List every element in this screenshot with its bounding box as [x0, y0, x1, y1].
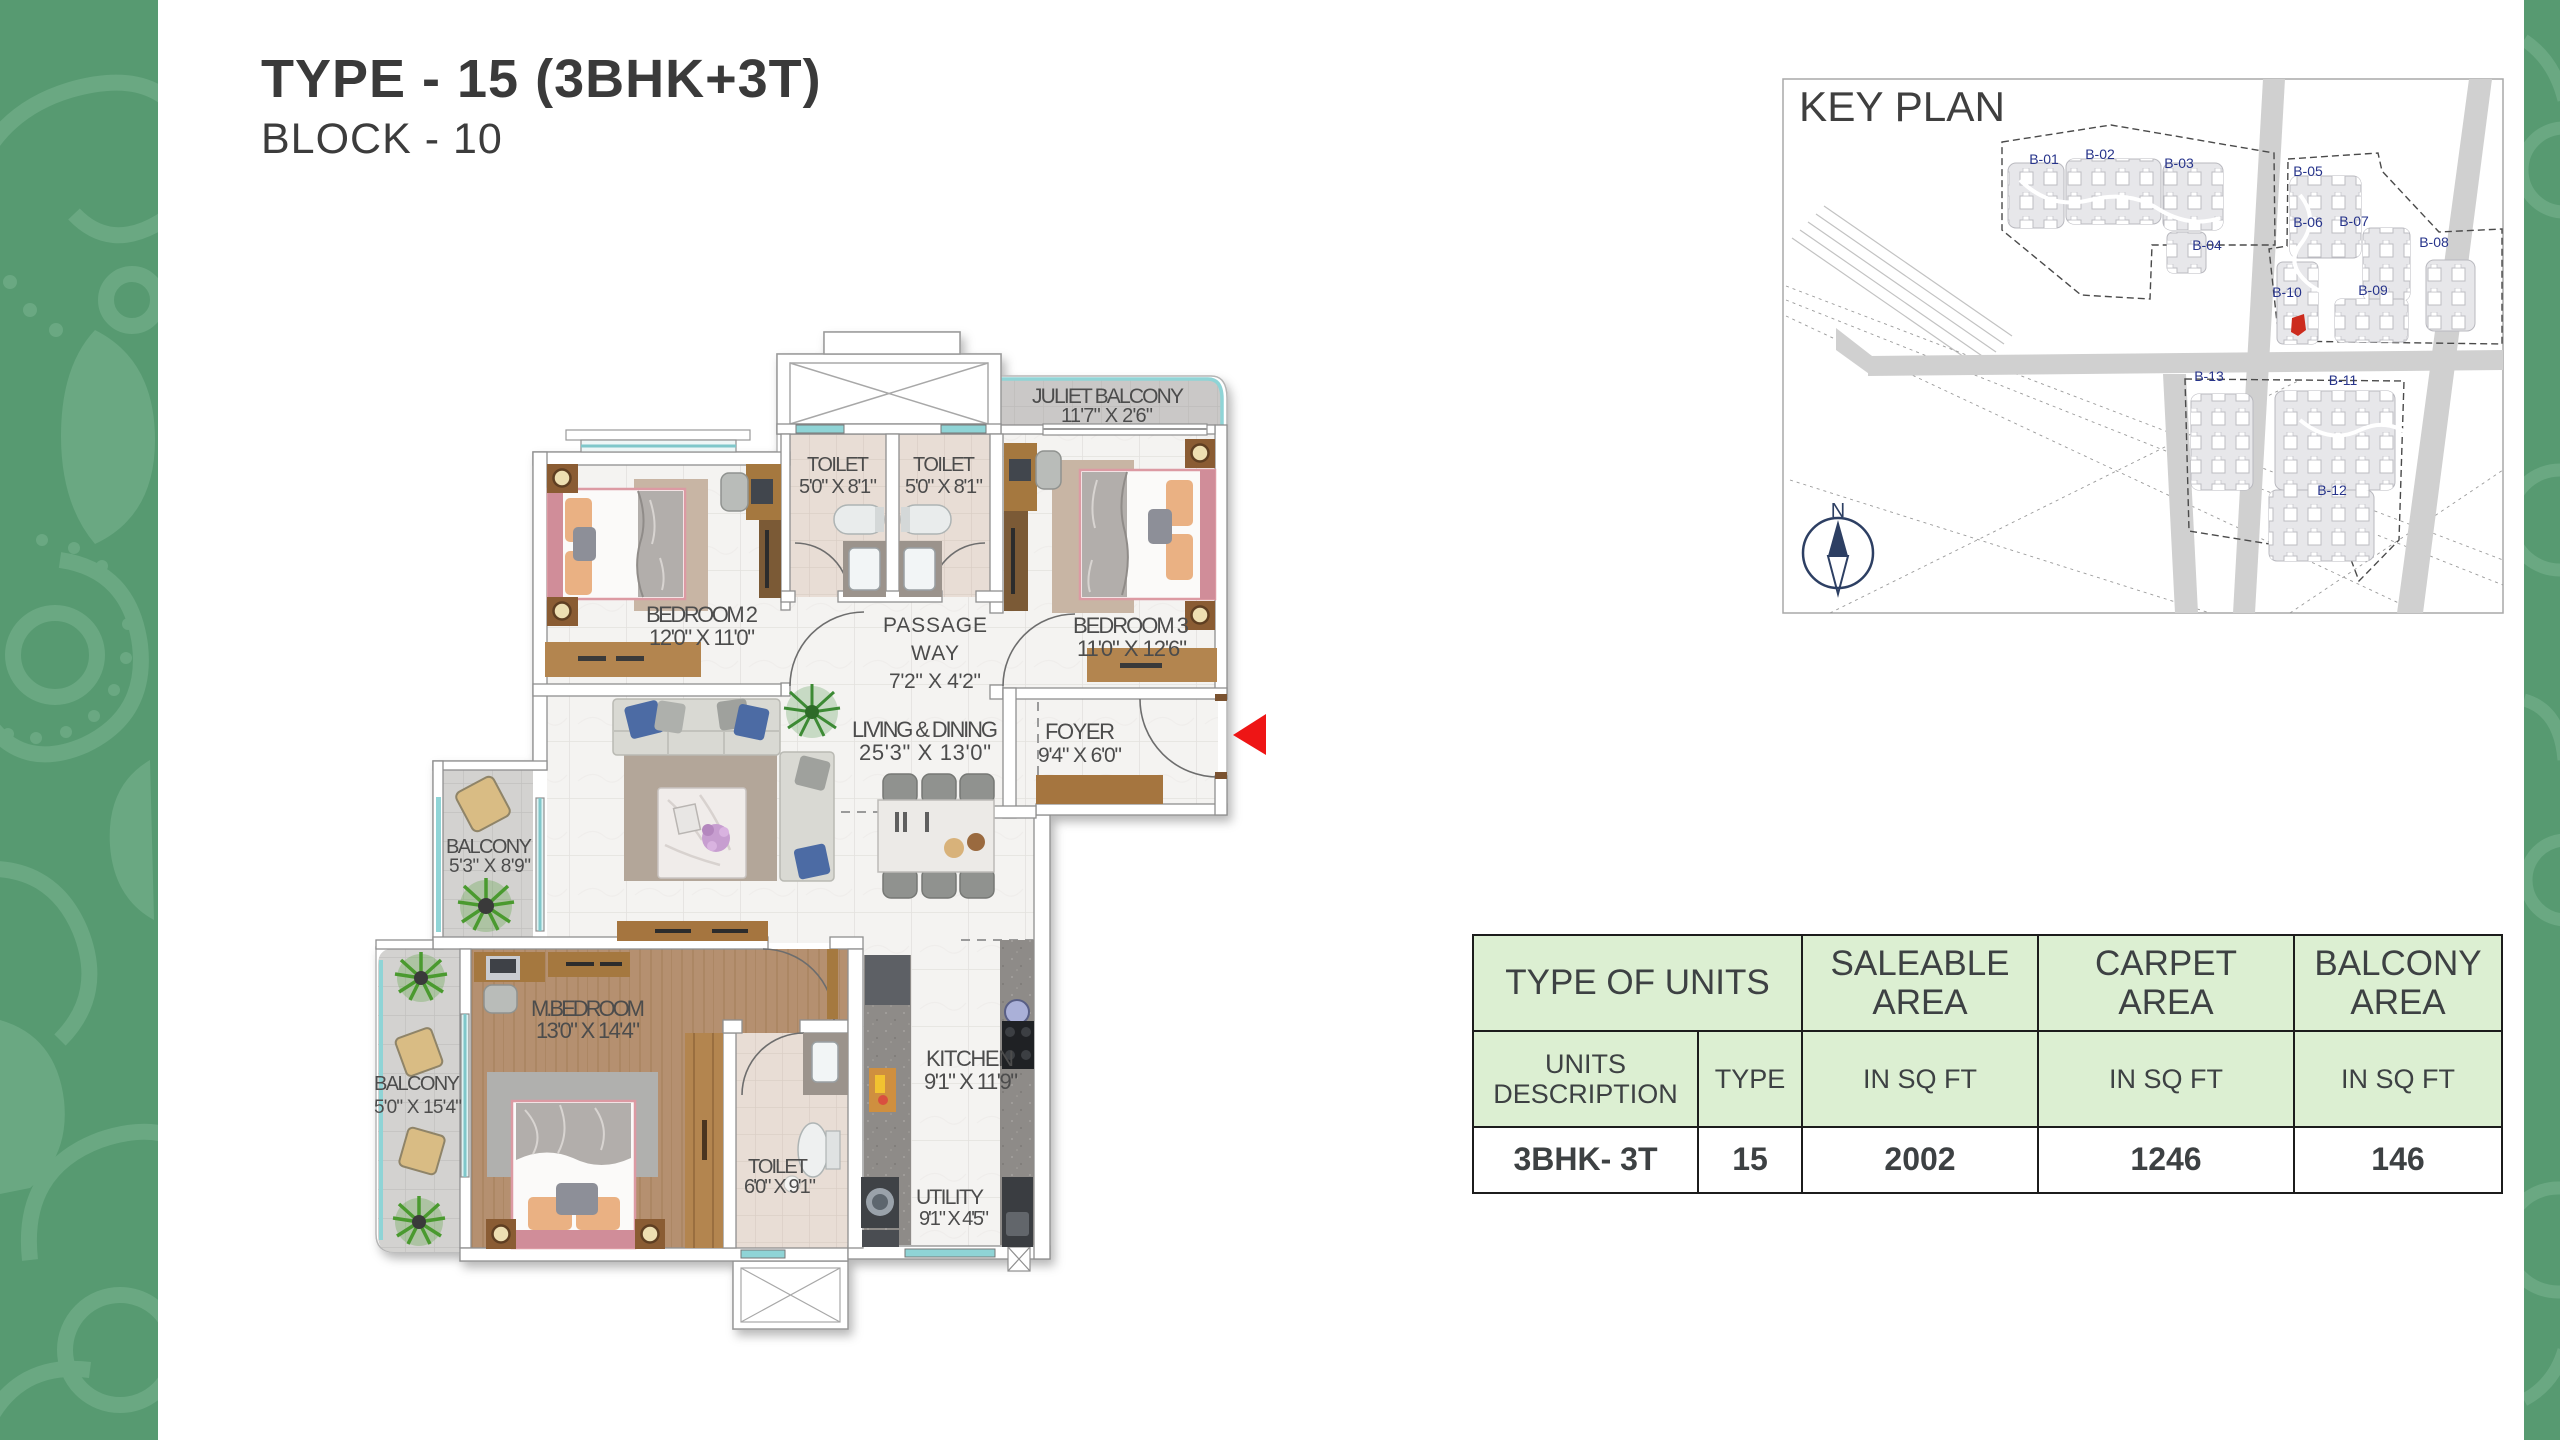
svg-text:KITCHEN: KITCHEN: [926, 1046, 1014, 1071]
svg-text:UTILITY: UTILITY: [916, 1186, 984, 1209]
svg-text:LIVING & DINING: LIVING & DINING: [852, 717, 998, 742]
svg-text:WAY: WAY: [911, 642, 959, 665]
svg-text:B-06: B-06: [2293, 214, 2323, 230]
svg-text:B-05: B-05: [2293, 163, 2323, 179]
svg-text:7'2" X 4'2": 7'2" X 4'2": [889, 670, 981, 693]
svg-text:6'0" X 9'1": 6'0" X 9'1": [744, 1176, 816, 1198]
svg-text:B-12: B-12: [2317, 482, 2347, 498]
svg-text:5'0" X 8'1": 5'0" X 8'1": [905, 476, 983, 498]
svg-text:11'7" X 2'6": 11'7" X 2'6": [1061, 405, 1153, 427]
svg-text:TOILET: TOILET: [807, 454, 869, 476]
svg-text:9'1" X 11'9": 9'1" X 11'9": [924, 1069, 1018, 1094]
svg-text:B-01: B-01: [2029, 151, 2059, 167]
svg-text:B-11: B-11: [2329, 372, 2358, 388]
svg-text:B-07: B-07: [2339, 213, 2369, 229]
svg-text:9'4" X 6'0": 9'4" X 6'0": [1038, 744, 1122, 767]
svg-text:B-10: B-10: [2272, 284, 2302, 300]
svg-text:TOILET: TOILET: [913, 454, 975, 476]
svg-text:KEY PLAN: KEY PLAN: [1799, 83, 2005, 130]
svg-text:13'0" X 14'4": 13'0" X 14'4": [536, 1018, 640, 1043]
svg-text:BALCONY: BALCONY: [446, 836, 532, 858]
svg-text:11'0" X 12'6": 11'0" X 12'6": [1077, 636, 1187, 661]
svg-text:B-13: B-13: [2194, 368, 2224, 384]
svg-text:5'0" X 8'1": 5'0" X 8'1": [799, 476, 877, 498]
svg-text:B-08: B-08: [2419, 234, 2449, 250]
svg-text:BEDROOM 3: BEDROOM 3: [1073, 613, 1189, 638]
svg-text:FOYER: FOYER: [1045, 719, 1115, 744]
svg-text:B-02: B-02: [2085, 146, 2115, 162]
svg-text:9'1" X 4'5": 9'1" X 4'5": [919, 1208, 989, 1230]
svg-text:PASSAGE: PASSAGE: [883, 614, 987, 637]
svg-text:12'0" X 11'0": 12'0" X 11'0": [649, 625, 755, 650]
svg-text:BALCONY: BALCONY: [374, 1073, 460, 1095]
svg-text:5'3" X 8'9": 5'3" X 8'9": [449, 856, 531, 877]
svg-text:B-03: B-03: [2164, 155, 2194, 171]
svg-text:N: N: [1831, 500, 1845, 522]
svg-text:5'0" X 15'4": 5'0" X 15'4": [374, 1097, 462, 1118]
svg-text:TOILET: TOILET: [748, 1156, 808, 1178]
svg-text:B-04: B-04: [2192, 237, 2222, 253]
svg-text:B-09: B-09: [2358, 282, 2388, 298]
svg-text:BEDROOM 2: BEDROOM 2: [646, 602, 758, 627]
svg-text:25'3" X 13'0": 25'3" X 13'0": [859, 740, 991, 765]
